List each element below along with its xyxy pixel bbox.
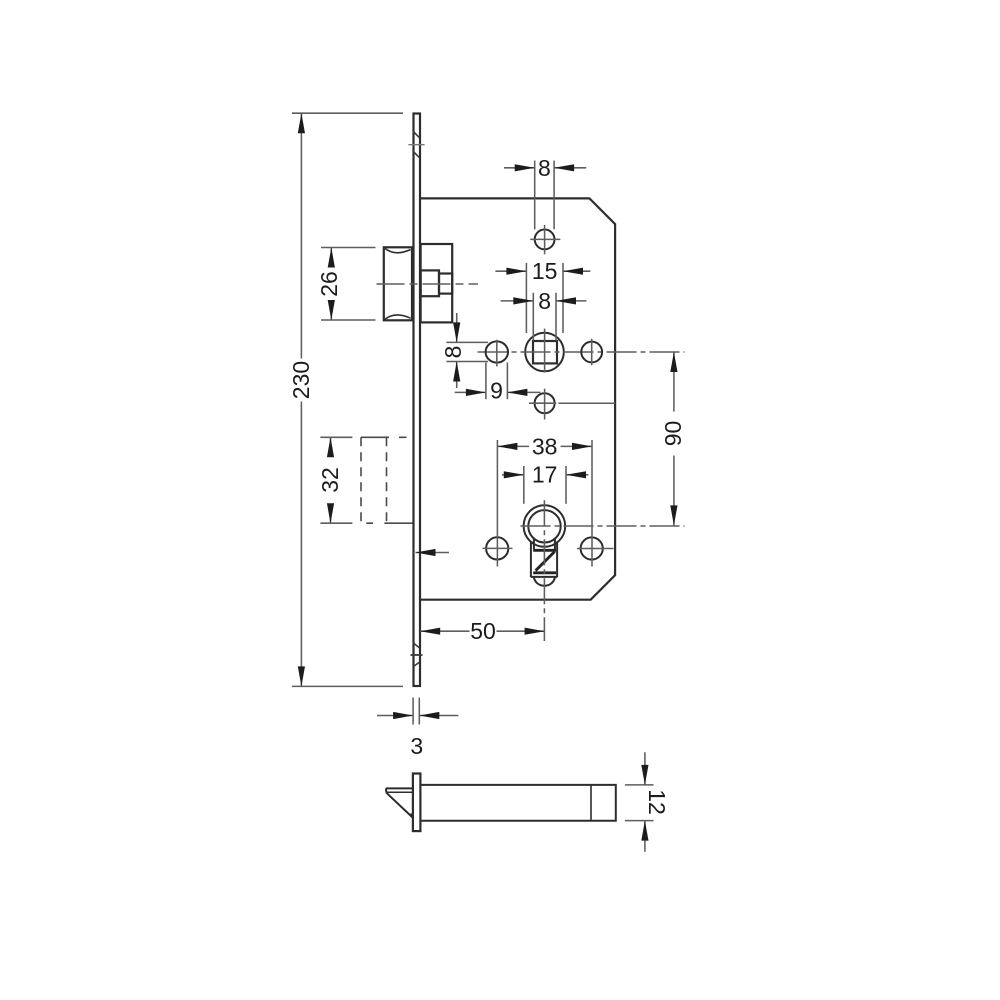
svg-text:32: 32: [317, 467, 343, 493]
svg-text:15: 15: [532, 258, 558, 284]
svg-text:50: 50: [470, 618, 496, 644]
svg-text:12: 12: [644, 789, 670, 815]
svg-text:8: 8: [440, 346, 466, 359]
svg-text:26: 26: [316, 271, 342, 297]
svg-text:9: 9: [490, 378, 503, 404]
svg-text:230: 230: [288, 361, 314, 399]
svg-text:90: 90: [660, 421, 686, 447]
svg-text:3: 3: [410, 733, 423, 759]
svg-text:8: 8: [538, 288, 551, 314]
svg-text:38: 38: [532, 433, 558, 459]
svg-text:17: 17: [532, 461, 558, 487]
svg-text:8: 8: [538, 155, 551, 181]
